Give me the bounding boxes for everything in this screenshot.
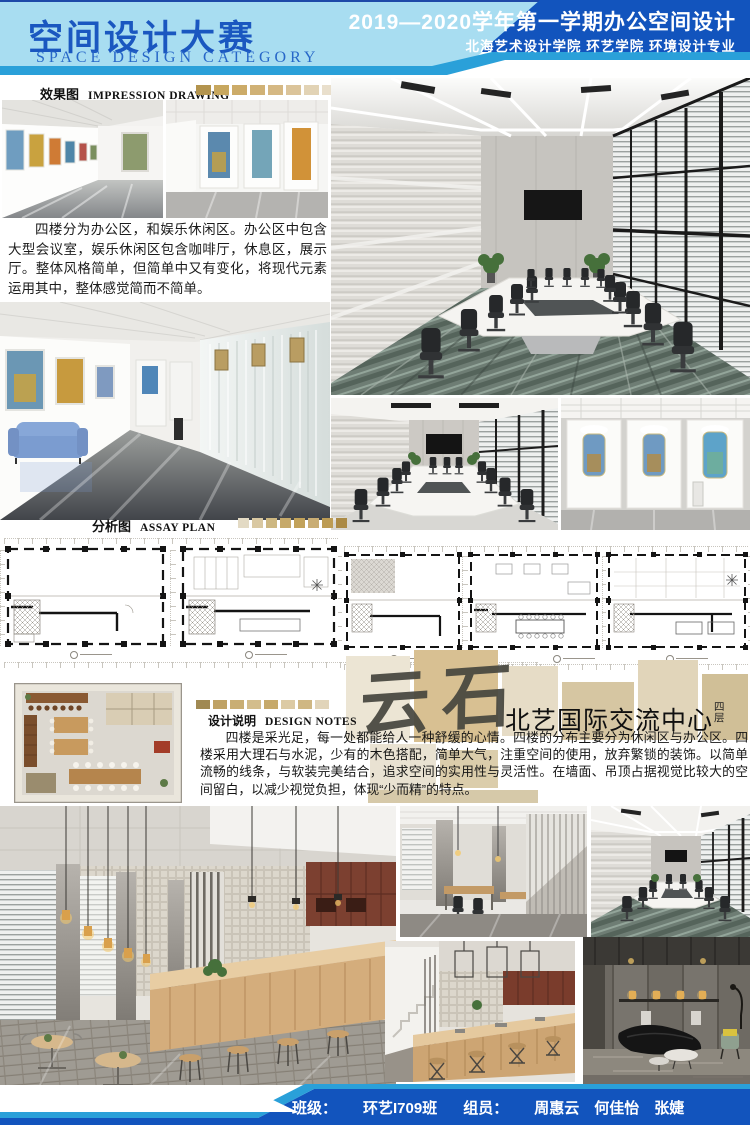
colored-furniture-plan [14,683,182,808]
floor-plan-4 [468,552,600,655]
footer-credits: 班级：环艺I709班组员：周惠云 何佳怡 张婕 [292,1097,742,1118]
course-title: 2019—2020学年第一学期办公空间设计 [349,6,736,36]
render-dark-lounge [583,937,750,1085]
color-chip [308,518,319,528]
render-corridor-sofa [0,302,330,520]
color-chip [268,85,283,95]
render-gallery-hallway [2,100,163,218]
poster-page: 空间设计大赛 SPACE DESIGN CATEGORY 2019—2020学年… [0,0,750,1125]
floor-plan-5 [606,552,748,655]
team-members: 周惠云 何佳怡 张婕 [534,1100,684,1117]
floor-plan-2 [180,545,338,653]
plan-caption-mark [70,650,114,659]
render-gallery-panels [166,100,328,218]
color-chip [294,518,305,528]
section-notes-header: 设计说明DESIGN NOTES [208,712,357,729]
class-value: 环艺I709班 [363,1100,437,1117]
assay-color-strip [238,518,350,529]
school-line: 北海艺术设计学院 环艺学院 环境设计专业 [465,35,736,55]
color-chip [266,518,277,528]
color-chip [247,700,261,709]
floor-plan-1 [5,545,167,653]
section-assay-header: 分析图ASSAY PLAN [92,516,215,535]
section-assay-cn: 分析图 [92,519,131,534]
render-meeting-room [331,398,558,530]
color-chip [304,85,319,95]
floor-plan-3 [344,552,462,655]
color-chip [213,700,227,709]
poster-title-en: SPACE DESIGN CATEGORY [36,49,319,67]
plan-caption-mark [553,654,597,663]
color-chip [230,700,244,709]
notes-color-strip [196,700,332,711]
color-chip [250,85,265,95]
dimension-line [4,538,338,544]
intro-paragraph: 四楼分为办公区，和娱乐休闲区。办公区中包含大型会议室，娱乐休闲区包含咖啡厅，休息… [8,220,327,298]
render-conference-room-large [331,78,750,395]
color-chip [281,700,295,709]
color-chip [298,700,312,709]
plan-caption-mark [245,650,289,659]
color-chip [322,518,333,528]
dimension-line [170,550,176,646]
section-notes-en: DESIGN NOTES [265,716,357,728]
section-notes-cn: 设计说明 [208,714,256,728]
render-exhibition-panels [561,398,750,530]
color-chip [238,518,249,528]
color-chip [315,700,329,709]
impression-color-strip [196,85,340,96]
project-floor-label: 四层 [714,702,726,724]
team-label: 组员： [463,1100,508,1117]
render-cafe-large [0,806,396,1085]
section-assay-en: ASSAY PLAN [140,522,215,534]
color-chip [286,85,301,95]
render-cafe-bar [385,941,575,1082]
color-chip [264,700,278,709]
render-conference-small [591,806,750,937]
color-chip [336,518,347,528]
color-chip [214,85,229,95]
render-office-columns [400,806,587,937]
color-chip [280,518,291,528]
color-chip [196,700,210,709]
color-chip [196,85,211,95]
design-notes-paragraph: 四楼是采光足，每一处都能给人一种舒缓的心情。四楼的分布主要分为休闲区与办公区。四… [200,729,748,798]
color-chip [232,85,247,95]
color-chip [252,518,263,528]
class-label: 班级： [292,1100,337,1117]
